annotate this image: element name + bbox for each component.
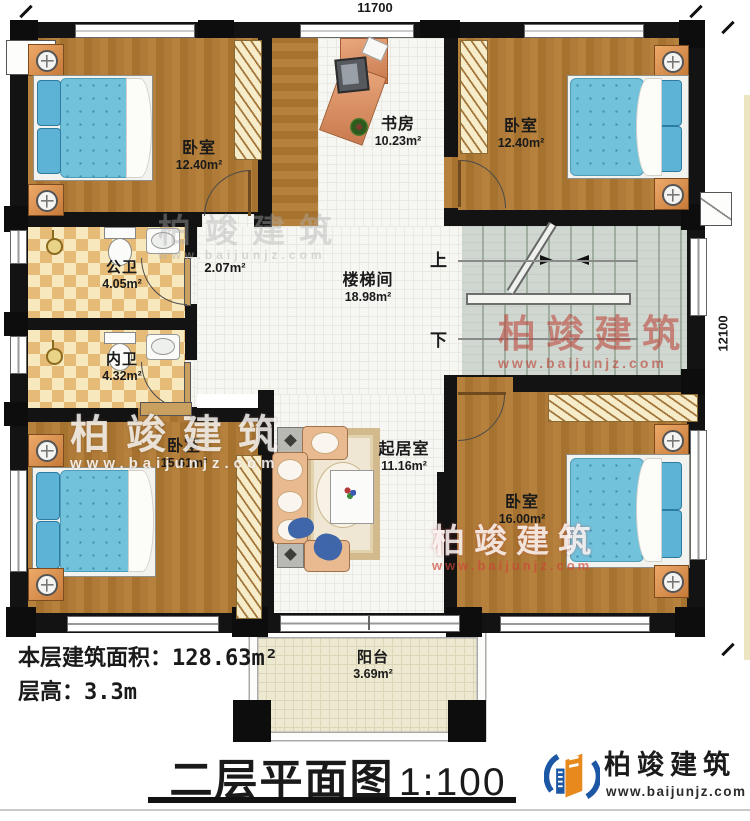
wall [444,38,458,157]
room-label-balcony: 阳台3.69m² [326,650,420,681]
window [75,24,195,38]
room-label-stair-hall: 楼梯间18.98m² [316,272,420,304]
wall [10,318,197,330]
column [4,402,28,426]
window [10,470,27,572]
column [679,20,705,48]
flower-vase-icon [342,484,358,500]
balcony-column [448,700,486,742]
room-label-bedroom-br: 卧室16.00m² [470,494,574,526]
floor-plan-sheet: 上 下 [0,0,750,821]
floor-strip [272,38,318,227]
room-label-bedroom-tr: 卧室12.40m² [472,118,570,150]
wardrobe [236,455,262,619]
window [10,230,27,264]
column [420,20,460,38]
bed-pillow [36,521,60,569]
floor-area-text: 本层建筑面积：128.63m² [18,640,278,672]
stair-leader-line [458,260,638,262]
window [10,336,27,374]
room-label-living: 起居室11.16m² [352,441,456,473]
room-label-bedroom-tl: 卧室12.40m² [152,140,246,172]
nightstand [28,184,64,216]
shower-icon [46,238,63,255]
shower-hose [52,340,54,349]
room-label-private-bath: 内卫4.32m² [82,352,162,383]
room-label-nook-area: 2.07m² [190,261,260,276]
bed-pillow [37,80,61,126]
stairs-up-label: 上 [430,246,456,268]
shower-hose [52,230,54,239]
logo-url: www.baijunjz.com [606,784,747,799]
side-table [277,541,304,568]
door-leaf [140,402,192,416]
nightstand [654,45,689,77]
dimension-top: 11700 [338,0,412,16]
slider-meeting-stile [368,615,370,630]
dimension-tick [721,643,734,656]
dimension-tick [689,5,702,18]
monitor-icon [334,56,369,93]
nightstand [28,568,64,601]
bed-mattress [60,78,134,178]
nightstand [28,434,64,467]
dimension-tick [19,5,32,18]
wardrobe [548,394,698,422]
nightstand [28,44,64,76]
window [67,616,219,632]
floor-height-text: 层高：3.3m [18,674,137,706]
bed-blanket [128,470,154,572]
column [4,312,28,336]
logo-building-icon [544,748,600,804]
balcony-column [233,700,271,742]
nightstand [654,178,689,210]
window [690,430,707,560]
room-label-study: 书房10.23m² [352,116,444,148]
bed-blanket [636,458,662,562]
bed-blanket [126,78,152,178]
footer-divider [0,809,750,811]
column [675,607,705,637]
stair-handrail [466,293,631,305]
side-table [277,427,304,454]
nightstand [654,424,689,457]
window [524,24,644,38]
door-opening [457,377,513,392]
floor-hall [197,226,462,394]
bed-mattress [60,470,134,572]
room-label-public-bath: 公卫4.05m² [82,260,162,291]
bed-pillow [37,128,61,174]
site-edge [744,95,750,660]
column [4,206,28,232]
tv [437,472,451,530]
column [6,607,36,637]
shower-icon [46,348,63,365]
bed-pillow [36,472,60,520]
ac-platform [700,192,732,226]
window [500,616,650,632]
wall [444,210,705,226]
nightstand [654,565,689,598]
stairs-down-label: 下 [430,326,456,348]
sink-basin-icon [151,232,175,249]
window [300,24,414,38]
title-underline [148,797,516,803]
room-label-bedroom-bl: 卧室15.61m² [136,438,232,470]
dimension-tick [721,21,734,34]
balcony-slider [280,615,460,632]
column [198,20,234,38]
door-opening [444,157,458,208]
bed-mattress [570,78,644,176]
column [681,369,705,395]
bed-mattress [570,458,644,562]
logo: 柏竣建筑 www.baijunjz.com [544,746,746,808]
sofa-seat [302,426,348,460]
bed-blanket [636,78,662,176]
dimension-right: 12100 [704,300,742,370]
logo-brand: 柏竣建筑 [604,752,736,779]
stair-leader-line [458,338,638,340]
